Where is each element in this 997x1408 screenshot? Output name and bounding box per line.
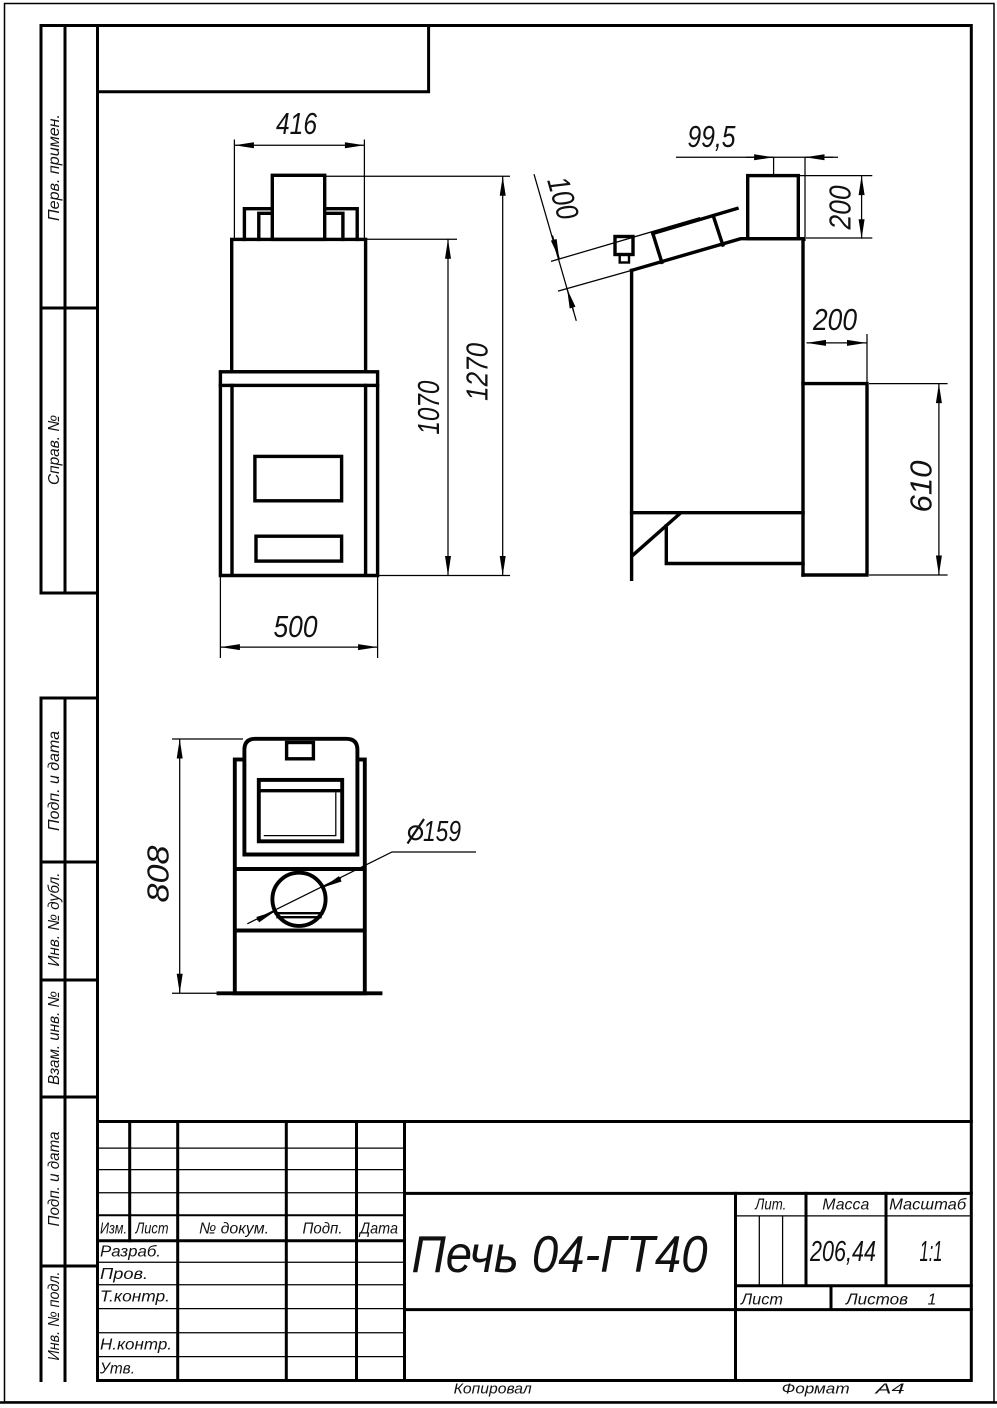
svg-text:Справ. №: Справ. № [46, 415, 63, 485]
svg-text:А4: А4 [874, 1381, 905, 1398]
svg-text:Перв. примен.: Перв. примен. [46, 114, 63, 221]
svg-text:Печь 04-ГТ40: Печь 04-ГТ40 [412, 1226, 708, 1284]
svg-text:Утв.: Утв. [99, 1361, 135, 1378]
svg-text:99,5: 99,5 [688, 119, 737, 154]
svg-text:Н.контр.: Н.контр. [100, 1337, 172, 1354]
svg-text:Подп.: Подп. [303, 1221, 343, 1238]
svg-text:Масштаб: Масштаб [889, 1197, 967, 1214]
svg-text:1:1: 1:1 [920, 1236, 943, 1268]
svg-text:1070: 1070 [411, 381, 446, 435]
svg-text:Масса: Масса [822, 1197, 869, 1214]
svg-text:206,44: 206,44 [809, 1236, 876, 1268]
svg-text:1270: 1270 [460, 343, 495, 401]
svg-text:808: 808 [141, 845, 176, 903]
svg-text:Подп. и дата: Подп. и дата [46, 731, 63, 831]
svg-text:Разраб.: Разраб. [100, 1244, 161, 1261]
svg-text:Копировал: Копировал [454, 1381, 533, 1398]
svg-text:159: 159 [423, 816, 461, 848]
svg-text:Подп. и дата: Подп. и дата [46, 1131, 63, 1226]
svg-text:Пров.: Пров. [100, 1266, 148, 1283]
svg-text:Изм.: Изм. [100, 1221, 127, 1238]
svg-text:Лист: Лист [135, 1221, 169, 1238]
svg-text:Листов: Листов [845, 1292, 908, 1309]
svg-text:1: 1 [928, 1292, 937, 1309]
svg-text:Инв. № дубл.: Инв. № дубл. [46, 873, 63, 967]
svg-text:Инв. № подл.: Инв. № подл. [46, 1272, 63, 1361]
svg-text:Лист: Лист [740, 1292, 783, 1309]
svg-text:610: 610 [904, 461, 939, 513]
svg-text:Лит.: Лит. [754, 1197, 786, 1214]
svg-text:200: 200 [812, 302, 857, 337]
svg-text:Формат: Формат [782, 1381, 850, 1398]
svg-text:№ докум.: № докум. [199, 1221, 269, 1238]
svg-text:500: 500 [274, 609, 318, 644]
svg-text:Дата: Дата [358, 1221, 398, 1238]
svg-text:200: 200 [823, 186, 858, 231]
svg-text:416: 416 [276, 106, 318, 141]
svg-text:Взам. инв. №: Взам. инв. № [46, 991, 63, 1085]
svg-text:Т.контр.: Т.контр. [100, 1289, 170, 1306]
